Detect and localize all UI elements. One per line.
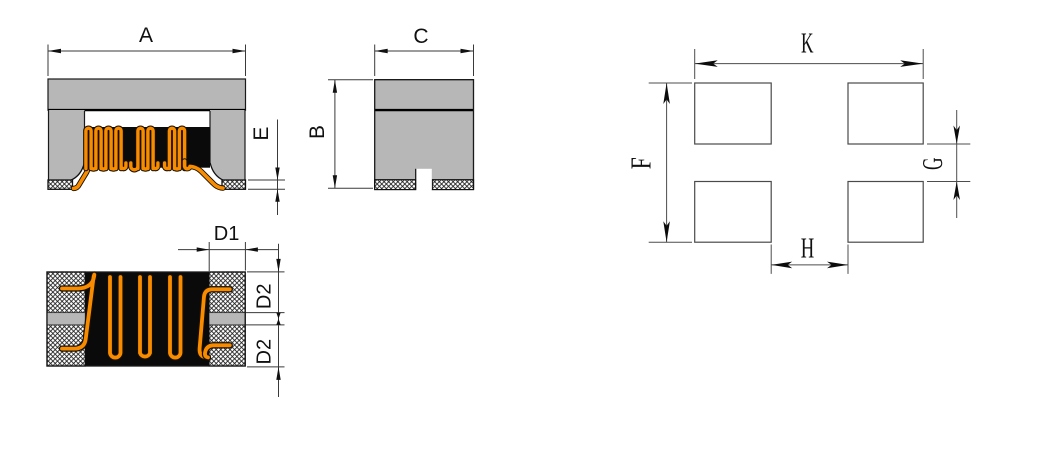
svg-text:D1: D1 (214, 223, 240, 245)
svg-text:B: B (306, 125, 329, 139)
svg-text:G: G (918, 158, 949, 171)
svg-text:E: E (250, 127, 273, 141)
svg-text:K: K (801, 29, 814, 60)
svg-text:C: C (413, 25, 428, 48)
svg-text:D2: D2 (254, 284, 276, 310)
svg-text:H: H (801, 234, 815, 265)
svg-text:A: A (139, 24, 153, 47)
svg-text:F: F (627, 157, 658, 169)
svg-text:D2: D2 (254, 339, 276, 365)
